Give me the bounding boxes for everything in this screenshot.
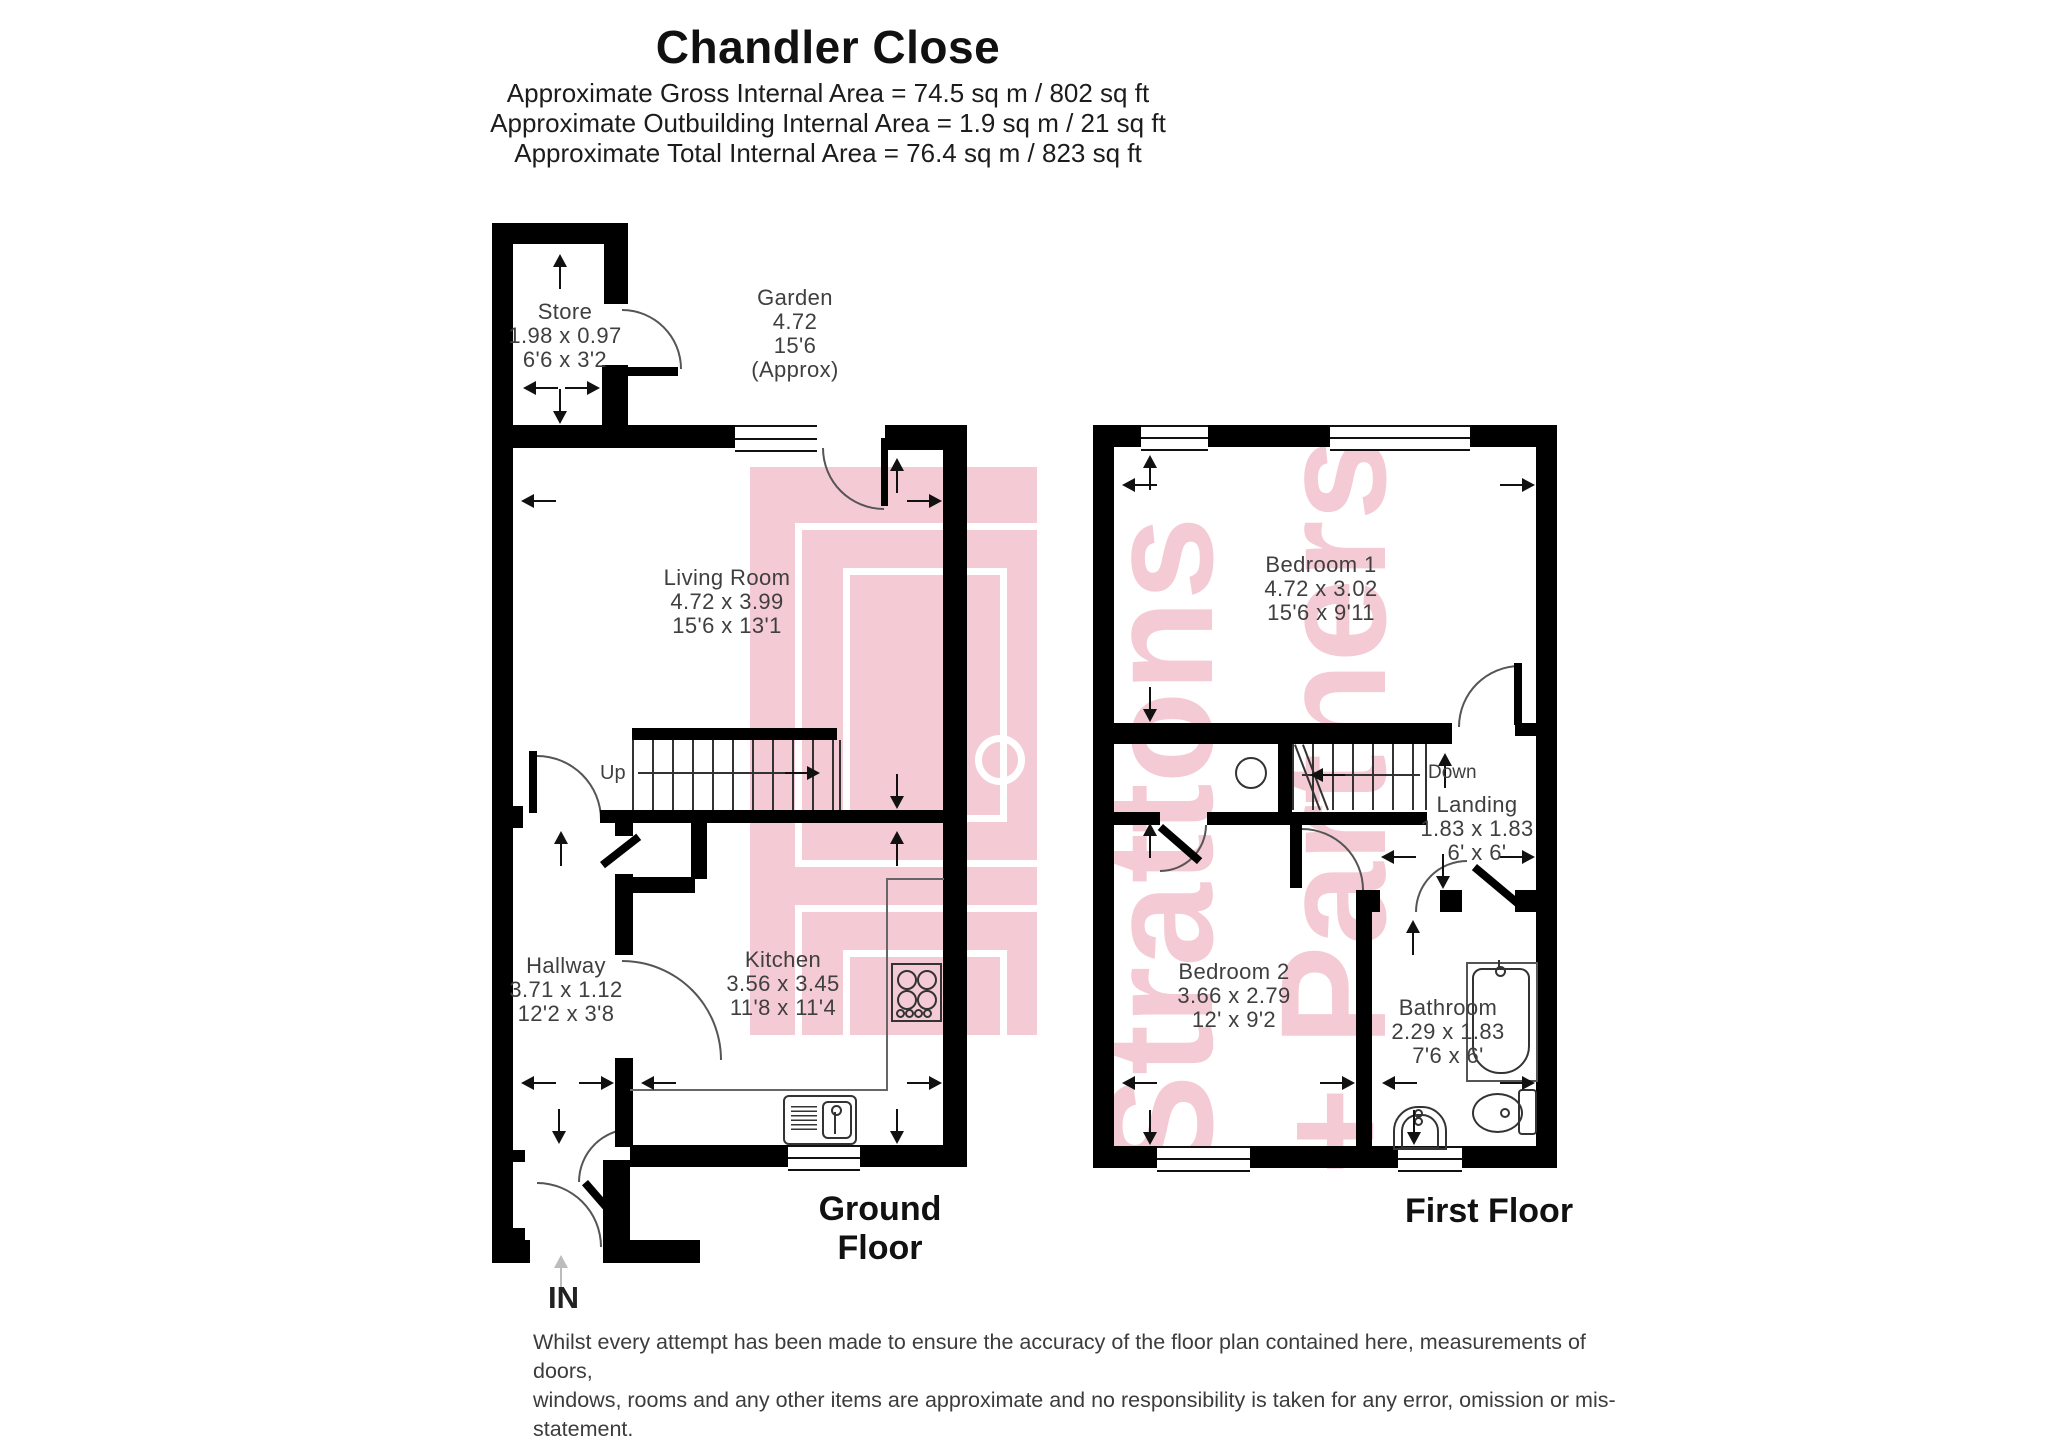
wall-segment xyxy=(633,877,695,893)
logo-ring xyxy=(975,735,1025,785)
dimension-arrow xyxy=(1374,850,1394,864)
room-label-bedroom1: Bedroom 1 4.72 x 3.02 15'6 x 9'11 xyxy=(1221,553,1421,625)
sink-drainer-icon xyxy=(791,1103,817,1133)
room-dim-imperial: 11'8 x 11'4 xyxy=(683,996,883,1020)
dimension-arrow xyxy=(1115,1076,1135,1090)
room-dim-imperial: 7'6 x 6' xyxy=(1368,1044,1528,1068)
bath-tap-icon xyxy=(1495,966,1506,977)
wall-segment xyxy=(1470,425,1557,447)
page-title: Chandler Close xyxy=(328,20,1328,74)
dimension-arrow xyxy=(516,381,536,395)
dimension-arrow xyxy=(552,1131,566,1151)
bedroom1-door-arc xyxy=(1458,665,1520,727)
dimension-arrow xyxy=(929,494,949,508)
first-floor-caption: First Floor xyxy=(1389,1192,1589,1231)
dimension-arrow xyxy=(890,1131,904,1151)
hallway-door-leaf xyxy=(529,751,537,813)
total-area-line: Approximate Total Internal Area = 76.4 s… xyxy=(228,138,1428,168)
wall-segment xyxy=(860,1145,967,1167)
dimension-arrow xyxy=(1143,816,1157,836)
room-name: Bedroom 2 xyxy=(1134,960,1334,984)
outbuilding-area-line: Approximate Outbuilding Internal Area = … xyxy=(228,108,1428,138)
room-dim-metric: 3.56 x 3.45 xyxy=(683,972,883,996)
hob-knob-icon xyxy=(923,1009,932,1018)
counter-edge xyxy=(886,878,888,1090)
dimension-arrow xyxy=(1143,709,1157,729)
kitchen-window xyxy=(788,1145,860,1171)
toilet-bowl-icon xyxy=(1472,1093,1523,1133)
dimension-arrow xyxy=(1342,1076,1362,1090)
dimension-arrow xyxy=(1522,478,1542,492)
wall-segment xyxy=(510,806,523,828)
wall-segment xyxy=(615,893,633,955)
disclaimer-line: Whilst every attempt has been made to en… xyxy=(533,1328,1633,1386)
stairs-down-arrow-icon xyxy=(1303,768,1323,782)
room-dim-metric: 4.72 x 3.02 xyxy=(1221,577,1421,601)
wall-segment xyxy=(1093,425,1141,447)
cupboard-tank-icon xyxy=(1235,757,1267,789)
dimension-arrow xyxy=(553,247,567,267)
wall-segment xyxy=(691,823,707,879)
stairs-down-label: Down xyxy=(1428,762,1477,784)
room-dim-imperial: 15'6 x 9'11 xyxy=(1221,601,1421,625)
room-dim-imperial: 12' x 9'2 xyxy=(1134,1008,1334,1032)
toilet-flush-icon xyxy=(1500,1108,1510,1118)
room-name: Living Room xyxy=(627,566,827,590)
bathroom-door-leaf xyxy=(1472,864,1522,907)
room-label-living-room: Living Room 4.72 x 3.99 15'6 x 13'1 xyxy=(627,566,827,638)
room-dim-metric: 2.29 x 1.83 xyxy=(1368,1020,1528,1044)
counter-edge xyxy=(886,878,944,880)
wall-segment xyxy=(1462,1146,1557,1168)
dimension-arrow xyxy=(1143,448,1157,468)
gross-area-line: Approximate Gross Internal Area = 74.5 s… xyxy=(228,78,1428,108)
dimension-arrow xyxy=(587,381,607,395)
hallway-door-arc xyxy=(537,755,602,820)
hob-burner-icon xyxy=(917,970,937,990)
room-label-store: Store 1.98 x 0.97 6'6 x 3'2 xyxy=(480,300,650,372)
room-dim-metric: 1.98 x 0.97 xyxy=(480,324,650,348)
dimension-arrow xyxy=(929,1076,949,1090)
room-dim-metric: 3.71 x 1.12 xyxy=(486,978,646,1002)
wall-segment xyxy=(1093,447,1114,1168)
wall-segment xyxy=(513,1150,525,1162)
room-dim-imperial: 15'6 xyxy=(710,334,880,358)
room-dim-metric: 4.72 x 3.99 xyxy=(627,590,827,614)
stairs-top-rail xyxy=(632,728,837,740)
living-room-window xyxy=(735,425,817,452)
wall-segment xyxy=(492,1240,530,1263)
disclaimer-line: windows, rooms and any other items are a… xyxy=(533,1386,1633,1444)
room-name: Hallway xyxy=(486,954,646,978)
dimension-arrow xyxy=(1522,1076,1542,1090)
room-dim-imperial: 6' x 6' xyxy=(1397,841,1557,865)
room-label-landing: Landing 1.83 x 1.83 6' x 6' xyxy=(1397,793,1557,865)
hob-knob-icon xyxy=(896,1009,905,1018)
room-dim-imperial: 6'6 x 3'2 xyxy=(480,348,650,372)
bedroom1-window xyxy=(1330,425,1470,451)
stairs-up-arrow-icon xyxy=(807,766,827,780)
basin-tap-icon xyxy=(1414,1117,1423,1126)
room-dim-metric: 1.83 x 1.83 xyxy=(1397,817,1557,841)
room-dim-metric: 3.66 x 2.79 xyxy=(1134,984,1334,1008)
hob-burner-icon xyxy=(917,990,937,1010)
room-label-hallway: Hallway 3.71 x 1.12 12'2 x 3'8 xyxy=(486,954,646,1026)
room-name: Landing xyxy=(1397,793,1557,817)
logo-door-inner-outline xyxy=(843,568,1007,822)
room-label-bathroom: Bathroom 2.29 x 1.83 7'6 x 6' xyxy=(1368,996,1528,1068)
bedroom2-window xyxy=(1157,1146,1250,1172)
room-label-bedroom2: Bedroom 2 3.66 x 2.79 12' x 9'2 xyxy=(1134,960,1334,1032)
dimension-arrow xyxy=(1143,1132,1157,1152)
sink-tap-knob-icon xyxy=(831,1105,842,1116)
disclaimer: Whilst every attempt has been made to en… xyxy=(533,1328,1633,1447)
dimension-arrow xyxy=(1407,1132,1421,1152)
wall-segment xyxy=(492,448,513,1263)
wall-segment xyxy=(513,1228,525,1240)
dimension-arrow xyxy=(1436,876,1450,896)
wall-segment xyxy=(1278,744,1292,812)
dimension-arrow xyxy=(601,1076,621,1090)
wall-segment xyxy=(943,425,967,1167)
room-dim-note: (Approx) xyxy=(710,358,880,382)
dimension-arrow xyxy=(1406,913,1420,933)
wall-segment xyxy=(615,874,633,893)
wall-segment xyxy=(1207,812,1427,825)
dimension-arrow xyxy=(890,796,904,816)
wall-segment xyxy=(615,823,633,836)
wall-segment xyxy=(1208,425,1330,447)
counter-edge xyxy=(630,1089,888,1091)
dimension-arrow xyxy=(890,824,904,844)
dimension-arrow xyxy=(1115,478,1135,492)
wall-segment xyxy=(1250,1146,1398,1168)
room-dim-imperial: 15'6 x 13'1 xyxy=(627,614,827,638)
dimension-arrow xyxy=(890,451,904,471)
area-summary: Approximate Gross Internal Area = 74.5 s… xyxy=(228,78,1428,168)
room-name: Store xyxy=(480,300,650,324)
garden-door-leaf xyxy=(881,438,888,506)
room-name: Bedroom 1 xyxy=(1221,553,1421,577)
stairs-up-label: Up xyxy=(600,762,626,785)
dimension-arrow xyxy=(553,411,567,431)
hob-knob-icon xyxy=(914,1009,923,1018)
dimension-arrow xyxy=(634,1076,654,1090)
entrance-arrow-icon xyxy=(554,1248,568,1268)
room-label-garden: Garden 4.72 15'6 (Approx) xyxy=(710,286,880,382)
wall-segment xyxy=(600,810,967,823)
wall-segment xyxy=(630,1145,788,1167)
room-name: Bathroom xyxy=(1368,996,1528,1020)
understairs-door-leaf xyxy=(600,834,641,869)
hob-burner-icon xyxy=(897,970,917,990)
floorplan-page: Chandler Close Approximate Gross Interna… xyxy=(0,0,2048,1447)
bedroom1-door-leaf xyxy=(1514,663,1522,725)
room-name: Garden xyxy=(710,286,880,310)
hob-burner-icon xyxy=(897,990,917,1010)
wall-segment xyxy=(492,425,735,448)
hob-knob-icon xyxy=(905,1009,914,1018)
dimension-arrow xyxy=(554,824,568,844)
dimension-arrow xyxy=(514,494,534,508)
dimension-arrow xyxy=(514,1076,534,1090)
wall-segment xyxy=(615,1058,633,1147)
bedroom2-door-leaf xyxy=(1290,825,1302,888)
room-label-kitchen: Kitchen 3.56 x 3.45 11'8 x 11'4 xyxy=(683,948,883,1020)
wall-segment xyxy=(604,223,628,304)
room-name: Kitchen xyxy=(683,948,883,972)
entrance-label: IN xyxy=(548,1280,579,1316)
dimension-arrow xyxy=(1375,1076,1395,1090)
room-dim-imperial: 12'2 x 3'8 xyxy=(486,1002,646,1026)
room-dim-metric: 4.72 xyxy=(710,310,880,334)
ground-floor-caption: Ground Floor xyxy=(780,1190,980,1268)
